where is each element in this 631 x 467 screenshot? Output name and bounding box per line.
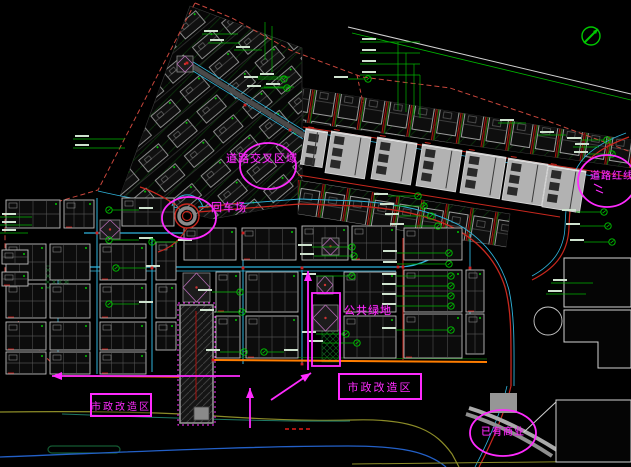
annotation-marker	[566, 223, 611, 229]
building-block	[50, 322, 90, 350]
annotation-tag	[360, 60, 420, 64]
annotation-existing-commercial: 已有商业	[481, 423, 525, 438]
plan-geometry	[603, 211, 606, 214]
plan-geometry	[247, 85, 261, 87]
plan-geometry	[141, 287, 143, 289]
plan-geometry	[383, 261, 397, 263]
plan-geometry	[108, 209, 111, 212]
annotation-marker	[383, 261, 452, 267]
plan-geometry	[417, 195, 420, 198]
plan-geometry	[467, 168, 478, 177]
plan-geometry	[380, 203, 394, 205]
plan-geometry	[500, 119, 514, 121]
plan-geometry	[2, 229, 16, 231]
building-block	[6, 322, 46, 350]
plan-geometry	[574, 151, 588, 153]
building-block	[156, 284, 176, 318]
plan-geometry	[55, 203, 57, 205]
plan-geometry	[511, 163, 522, 172]
plan-geometry	[244, 76, 258, 78]
plan-geometry	[291, 231, 293, 233]
annotation-municipal-zone-right: 市政改造区	[338, 373, 422, 400]
green-area	[322, 330, 339, 362]
plan-geometry	[479, 273, 481, 275]
townhouse-slab	[325, 129, 371, 179]
annotation-municipal-zone-left: 市政改造区	[90, 393, 152, 417]
plan-geometry	[198, 289, 212, 291]
annotation-tag	[73, 135, 125, 139]
plan-geometry	[547, 194, 558, 203]
plan-geometry	[41, 355, 43, 357]
plan-geometry	[171, 325, 173, 327]
node-dot	[96, 232, 99, 235]
node-dot	[186, 62, 189, 65]
building-block	[466, 270, 484, 312]
node-dot	[212, 359, 215, 362]
plan-geometry	[567, 137, 581, 139]
plan-geometry	[334, 136, 345, 145]
plan-geometry	[382, 273, 396, 275]
plan-geometry	[575, 143, 589, 145]
annotation-marker	[570, 239, 615, 245]
plan-geometry	[507, 186, 518, 195]
plan-geometry	[23, 253, 25, 255]
plan-geometry	[85, 247, 87, 249]
building-block	[2, 272, 28, 286]
plan-geometry	[509, 175, 520, 184]
plan-geometry	[566, 223, 580, 225]
plan-geometry	[390, 223, 404, 225]
node-dot	[402, 266, 405, 269]
building-block	[2, 250, 28, 264]
plan-geometry	[246, 388, 254, 398]
building-block	[6, 352, 46, 374]
building-block	[352, 226, 396, 260]
plan-geometry	[324, 317, 326, 319]
plan-geometry	[231, 231, 233, 233]
annotation-tag	[360, 71, 420, 75]
plan-geometry	[383, 250, 397, 252]
building-block	[156, 322, 176, 350]
plan-geometry	[391, 229, 393, 231]
plan-geometry	[300, 373, 311, 382]
node-dot	[242, 232, 245, 235]
existing-building	[564, 258, 631, 307]
plan-geometry	[391, 319, 393, 321]
plan-geometry	[385, 213, 399, 215]
building-block	[156, 242, 176, 280]
plan-geometry	[551, 170, 562, 179]
plan-geometry	[469, 156, 480, 165]
plan-geometry	[382, 327, 396, 329]
townhouse-slab	[300, 127, 328, 168]
site-boundary	[352, 33, 631, 100]
node-dot	[469, 267, 472, 270]
round-plaza	[534, 307, 562, 335]
node-dot	[397, 266, 400, 269]
townhouse-slab	[460, 149, 506, 199]
plan-geometry	[75, 144, 89, 146]
annotation-turnaround: 回车场	[211, 199, 247, 215]
plan-geometry	[382, 283, 396, 285]
building-block	[100, 322, 146, 350]
plan-geometry	[362, 71, 376, 73]
plan-geometry	[304, 271, 312, 281]
annotation-tag	[0, 229, 28, 233]
existing-building-edge	[524, 402, 556, 432]
plan-geometry	[171, 287, 173, 289]
plan-geometry	[376, 165, 387, 174]
plan-geometry	[235, 319, 237, 321]
building-block	[50, 244, 90, 280]
up-arrow-bottom	[246, 388, 254, 428]
plan-geometry	[89, 203, 91, 205]
plan-geometry	[139, 207, 153, 209]
plan-geometry	[330, 159, 341, 168]
annotation-road-intersection: 道路交叉区域	[226, 150, 298, 166]
plan-geometry	[2, 221, 16, 223]
building-block	[466, 314, 484, 354]
plan-geometry	[611, 241, 614, 244]
building-block	[404, 314, 462, 358]
road	[213, 360, 487, 362]
plan-geometry	[607, 225, 610, 228]
plan-geometry	[75, 135, 89, 137]
plan-geometry	[448, 263, 451, 266]
building-block	[6, 284, 46, 318]
plan-geometry	[570, 239, 584, 241]
plaza	[322, 238, 339, 255]
plan-geometry	[210, 39, 224, 41]
diag-arrow	[271, 373, 311, 400]
plan-geometry	[41, 247, 43, 249]
plan-geometry	[85, 325, 87, 327]
plan-geometry	[421, 172, 432, 181]
plan-geometry	[549, 182, 560, 191]
building-block	[404, 228, 462, 260]
building-block	[122, 198, 174, 226]
plan-geometry	[334, 129, 340, 130]
building-block	[242, 228, 296, 260]
townhouse-slab	[371, 135, 417, 185]
plan-geometry	[374, 193, 388, 195]
plan-geometry	[457, 273, 459, 275]
plan-geometry	[562, 209, 576, 211]
plan-geometry	[141, 247, 143, 249]
node-dot	[242, 267, 245, 270]
plaza	[183, 273, 210, 302]
plan-geometry	[540, 131, 554, 133]
plan-geometry	[423, 161, 434, 170]
plan-geometry	[85, 287, 87, 289]
up-arrow-center	[304, 271, 312, 370]
plan-geometry	[23, 275, 25, 277]
construction-pad	[194, 407, 209, 420]
building-block	[184, 228, 236, 260]
plan-geometry	[362, 60, 376, 62]
plan-geometry	[293, 319, 295, 321]
plan-geometry	[332, 148, 343, 157]
plan-geometry	[300, 253, 314, 255]
plan-geometry	[425, 149, 436, 158]
plan-geometry	[391, 275, 393, 277]
plan-geometry	[2, 213, 16, 215]
plan-geometry	[457, 317, 459, 319]
plan-geometry	[343, 229, 345, 231]
plan-geometry	[469, 149, 475, 150]
plaza	[177, 56, 193, 72]
plan-geometry	[41, 325, 43, 327]
annotation-public-green: 公共绿地	[344, 302, 392, 318]
building-block	[50, 352, 90, 374]
existing-building	[564, 310, 631, 368]
plan-geometry	[266, 83, 280, 85]
plan-geometry	[235, 275, 237, 277]
plan-geometry	[200, 309, 214, 311]
plan-geometry	[41, 287, 43, 289]
plan-geometry	[195, 286, 197, 288]
annotation-marker	[334, 76, 371, 82]
plan-geometry	[380, 135, 386, 136]
plan-geometry	[324, 284, 326, 286]
building-block	[344, 316, 396, 358]
plan-geometry	[260, 73, 274, 75]
plan-geometry	[378, 154, 389, 163]
building-block	[100, 352, 146, 374]
plan-geometry	[425, 142, 431, 143]
plan-geometry	[362, 49, 376, 51]
node-dot	[301, 363, 304, 366]
plan-geometry	[206, 349, 220, 351]
plan-geometry	[362, 38, 376, 40]
plan-geometry	[293, 275, 295, 277]
plan-geometry	[380, 142, 391, 151]
plaza	[313, 305, 338, 331]
plaza	[100, 220, 120, 239]
plan-geometry	[479, 317, 481, 319]
annotation-tag	[360, 49, 420, 53]
plan-geometry	[109, 228, 111, 230]
plan-geometry	[457, 231, 459, 233]
plan-geometry	[302, 331, 316, 333]
plan-geometry	[284, 349, 298, 351]
node-dot	[289, 129, 292, 132]
plan-geometry	[553, 279, 567, 281]
plan-geometry	[548, 290, 562, 292]
annotation-tag	[73, 144, 125, 148]
building-block	[64, 200, 94, 228]
plaza	[317, 276, 333, 294]
plan-geometry	[141, 325, 143, 327]
plan-geometry	[139, 301, 153, 303]
annotation-road-redline: 道路红线	[590, 167, 631, 182]
townhouse-slab	[502, 156, 548, 206]
plan-geometry	[465, 179, 476, 188]
building-block	[246, 272, 298, 312]
plan-geometry	[511, 156, 517, 157]
node-dot	[151, 267, 154, 270]
existing-building	[556, 400, 631, 462]
cad-canvas[interactable]: 道路交叉区域 回车场 道路红线 公共绿地 市政改造区 市政改造区 已有商业	[0, 0, 631, 467]
plan-geometry	[334, 76, 348, 78]
node-dot	[244, 104, 247, 107]
highlight-mark	[596, 190, 603, 193]
node-dot	[301, 267, 304, 270]
building-block	[100, 244, 146, 280]
highlight-mark	[594, 184, 602, 188]
plan-geometry	[85, 355, 87, 357]
plan-geometry	[382, 293, 396, 295]
plan-geometry	[236, 46, 250, 48]
plan-geometry	[141, 355, 143, 357]
annotation-tag	[360, 38, 420, 42]
townhouse-slab	[416, 142, 462, 192]
plan-geometry	[204, 30, 218, 32]
building-block	[50, 284, 90, 318]
green-median	[48, 446, 120, 453]
compass-icon	[582, 27, 600, 45]
plan-geometry	[298, 244, 312, 246]
annotation-marker	[562, 209, 607, 215]
